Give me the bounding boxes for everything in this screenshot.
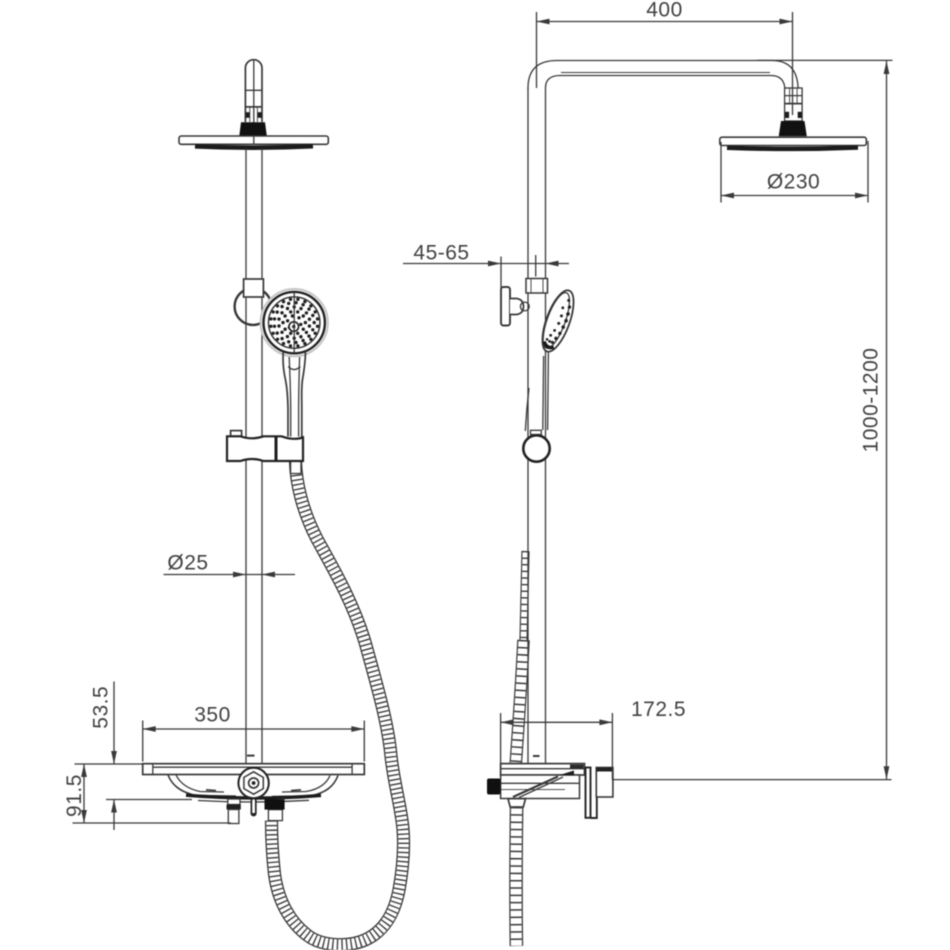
svg-text:1000-1200: 1000-1200 bbox=[860, 348, 883, 453]
svg-text:350: 350 bbox=[194, 704, 231, 727]
svg-text:Ø230: Ø230 bbox=[767, 171, 820, 194]
svg-text:172.5: 172.5 bbox=[631, 698, 686, 721]
svg-text:53.5: 53.5 bbox=[90, 686, 113, 729]
svg-text:Ø25: Ø25 bbox=[167, 552, 208, 575]
svg-text:400: 400 bbox=[646, 0, 683, 22]
svg-text:45-65: 45-65 bbox=[413, 242, 469, 265]
